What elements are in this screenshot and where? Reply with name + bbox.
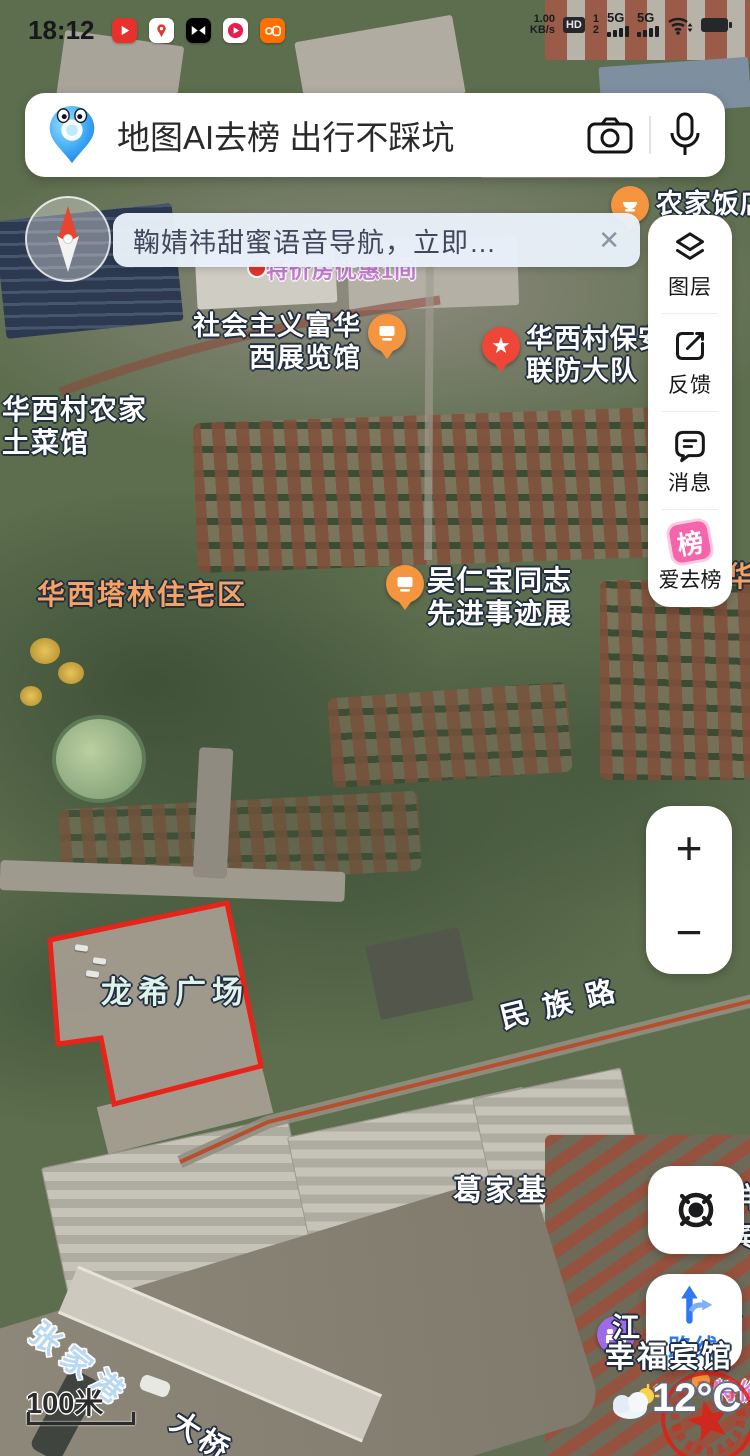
sim1-network: 5G [607, 12, 624, 24]
battery-icon [701, 18, 728, 32]
layers-label: 图层 [668, 271, 712, 301]
restaurant-icon [620, 195, 640, 215]
layers-button[interactable]: 图层 [648, 215, 732, 313]
poi-label-gejiaji: 葛家基 [453, 1175, 549, 1209]
promo-toast[interactable]: 鞠婧祎甜蜜语音导航，立即… ✕ [113, 213, 640, 267]
status-indicators: 1.00 KB/s HD 1 2 5G 5G [530, 12, 728, 37]
zoom-out-button[interactable]: − [646, 890, 732, 974]
museum-icon [395, 574, 415, 594]
close-icon[interactable]: ✕ [598, 225, 620, 256]
mascot-pin-icon [41, 103, 103, 167]
sim2-index: 2 [593, 25, 599, 36]
poi-line: 华西村保安 [526, 324, 666, 356]
zoom-control: + − [646, 806, 732, 974]
poi-label-local-restaurant[interactable]: 华西村农家 土菜馆 [2, 394, 147, 460]
poi-label-exhibition-hall[interactable]: 社会主义富华 西展览馆 [193, 311, 361, 374]
map-app-screen: 农家饭店 社会主义富华 西展览馆 ★ 华西村保安 联防大队 华西村农家 土菜馆 … [0, 0, 750, 1456]
poi-line: 联防大队 [526, 356, 666, 388]
route-arrow-icon [672, 1282, 716, 1326]
poi-line: 社会主义富华 [193, 311, 361, 343]
museum-icon [377, 323, 397, 343]
sim1-signal: 5G [607, 12, 629, 37]
poi-line: 吴仁宝同志 [427, 565, 572, 598]
camera-icon[interactable] [587, 116, 633, 154]
clock: 18:12 [28, 15, 95, 46]
wifi-icon [667, 14, 693, 36]
signal-bars-icon [637, 26, 659, 37]
status-bar: 18:12 1.00 KB/s HD 1 2 5G 5G [0, 0, 750, 56]
scale-bar [27, 1412, 135, 1425]
capcut-app-icon [186, 18, 211, 43]
poi-line: 华西村农家 [2, 394, 147, 427]
plaza-label-longxi[interactable]: 龙希广场 [101, 975, 249, 1011]
zoom-in-button[interactable]: + [646, 806, 732, 890]
favorites-button[interactable]: 榜 爱去榜 [648, 509, 732, 607]
locate-target-icon [668, 1182, 724, 1238]
star-icon: ★ [491, 335, 511, 357]
poi-label-memorial-exhibition[interactable]: 吴仁宝同志 先进事迹展 [427, 565, 572, 631]
maps-app-icon [149, 18, 174, 43]
edit-icon [670, 326, 710, 366]
search-bar[interactable]: 地图AI去榜 出行不踩坑 [25, 93, 725, 177]
hd-badge: HD [563, 17, 585, 33]
sim2-signal: 5G [637, 12, 659, 37]
feedback-label: 反馈 [668, 369, 712, 399]
poi-label-happiness-hotel[interactable]: 幸福宾馆 [605, 1340, 733, 1375]
kuaishou-app-icon [260, 18, 285, 43]
speed-unit: KB/s [530, 25, 555, 36]
messages-button[interactable]: 消息 [648, 411, 732, 509]
messages-label: 消息 [668, 467, 712, 497]
poi-line: 先进事迹展 [427, 598, 572, 631]
notification-app-icons [112, 18, 285, 43]
poi-line: 土菜馆 [2, 427, 147, 460]
signal-bars-icon [607, 26, 629, 37]
locate-button[interactable] [648, 1166, 744, 1254]
network-speed: 1.00 KB/s [530, 14, 555, 36]
poi-label-pagoda-residential[interactable]: 华西塔林住宅区 [37, 579, 247, 612]
exhibition-pin[interactable] [368, 314, 406, 352]
compass[interactable] [22, 193, 114, 285]
poi-line: 西展览馆 [193, 343, 361, 375]
temperature-label: 12°C [652, 1376, 741, 1421]
favorites-label: 爱去榜 [659, 564, 722, 594]
layers-icon [670, 228, 710, 268]
speed-value: 1.00 [530, 14, 555, 25]
side-tool-panel: 图层 反馈 消息 榜 爱去榜 [648, 215, 732, 607]
search-input[interactable]: 地图AI去榜 出行不踩坑 [117, 111, 587, 159]
bang-badge-icon: 榜 [668, 519, 712, 563]
video-app-icon [112, 18, 137, 43]
toast-message: 鞠婧祎甜蜜语音导航，立即… [133, 221, 598, 260]
feedback-button[interactable]: 反馈 [648, 313, 732, 411]
video-play-app-icon [223, 18, 248, 43]
memorial-pin[interactable] [386, 565, 424, 603]
sim1-index: 1 [593, 14, 599, 25]
security-pin[interactable]: ★ [482, 327, 520, 365]
microphone-icon[interactable] [667, 111, 703, 159]
sim2-network: 5G [637, 12, 654, 24]
sim-indices: 1 2 [593, 14, 599, 36]
divider [649, 116, 651, 154]
chat-icon [670, 424, 710, 464]
poi-label-security-brigade[interactable]: 华西村保安 联防大队 [526, 324, 666, 387]
